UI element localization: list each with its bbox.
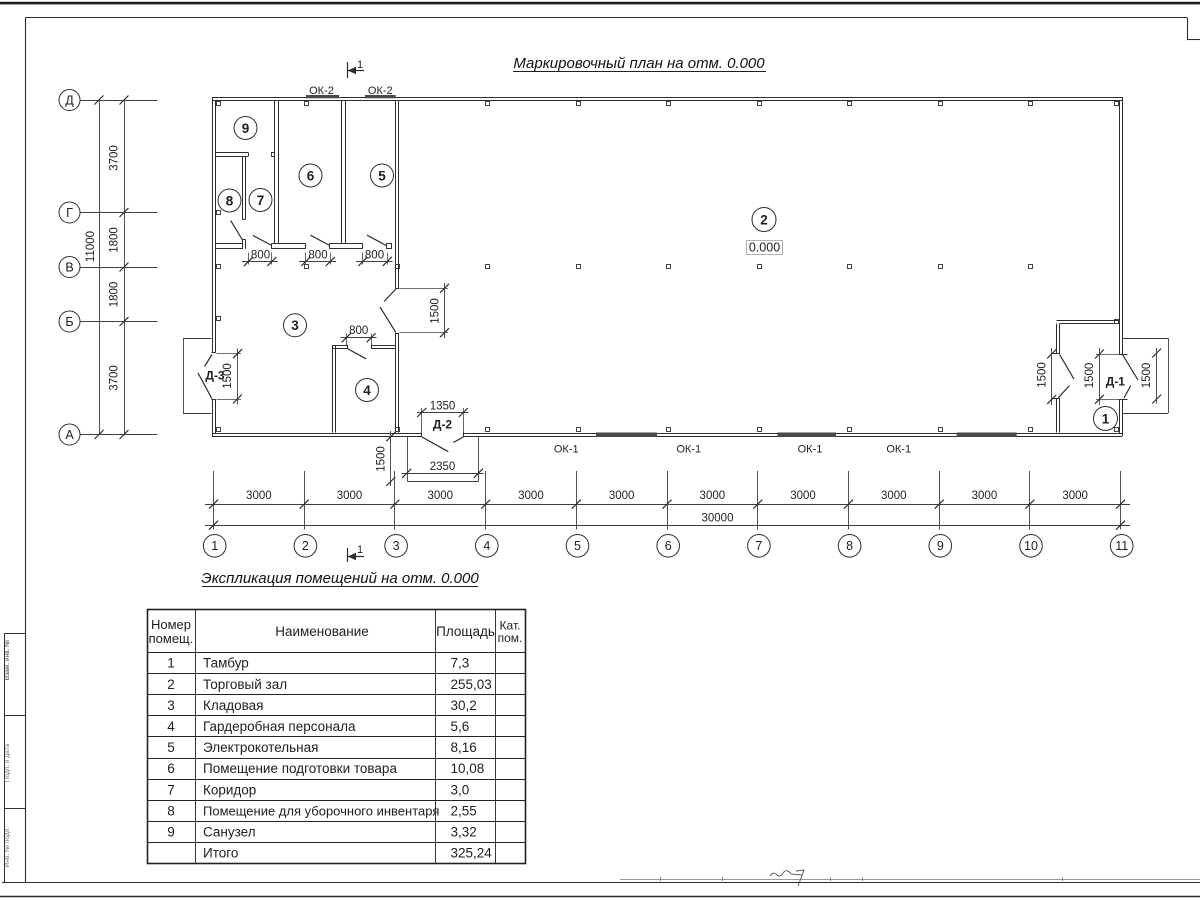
svg-text:3000: 3000 [246, 490, 272, 502]
svg-text:2: 2 [760, 212, 768, 227]
svg-text:3000: 3000 [1062, 490, 1088, 502]
svg-text:1800: 1800 [109, 227, 121, 253]
svg-text:4: 4 [363, 383, 371, 398]
svg-text:3700: 3700 [109, 145, 121, 171]
svg-text:4: 4 [167, 719, 175, 734]
svg-text:6: 6 [307, 168, 315, 183]
svg-text:Д-3: Д-3 [205, 369, 225, 383]
svg-text:Экспликация помещений на отм.: Экспликация помещений на отм. 0.000 [201, 570, 479, 587]
svg-text:3700: 3700 [109, 365, 121, 391]
svg-text:Площадь: Площадь [436, 624, 495, 639]
svg-text:6: 6 [665, 539, 672, 553]
svg-text:9: 9 [167, 824, 175, 839]
svg-text:3: 3 [291, 318, 299, 333]
svg-text:7: 7 [755, 539, 762, 553]
svg-text:Наименование: Наименование [275, 624, 369, 639]
svg-text:ОК-1: ОК-1 [886, 444, 911, 456]
svg-text:800: 800 [308, 249, 327, 261]
svg-text:Коридор: Коридор [203, 782, 256, 797]
svg-text:ОК-2: ОК-2 [368, 85, 393, 97]
svg-text:7: 7 [257, 193, 265, 208]
svg-text:9: 9 [242, 121, 250, 136]
svg-text:Кладовая: Кладовая [203, 698, 263, 713]
svg-text:6: 6 [167, 761, 175, 776]
svg-text:3000: 3000 [972, 490, 998, 502]
svg-text:Маркировочный план на отм. 0.0: Маркировочный план на отм. 0.000 [513, 55, 765, 72]
svg-text:325,24: 325,24 [451, 846, 493, 861]
svg-text:1: 1 [167, 656, 175, 671]
svg-text:ОК-1: ОК-1 [554, 444, 579, 456]
svg-text:Номер: Номер [151, 617, 191, 632]
svg-text:800: 800 [349, 325, 368, 337]
svg-text:ОК-1: ОК-1 [676, 444, 701, 456]
svg-text:5: 5 [378, 168, 386, 183]
svg-text:4: 4 [483, 539, 490, 553]
svg-text:Д: Д [65, 93, 74, 107]
svg-text:2,55: 2,55 [451, 803, 477, 818]
svg-text:5: 5 [574, 539, 581, 553]
svg-text:Помещение для уборочного инвен: Помещение для уборочного инвентаря [203, 803, 439, 818]
svg-text:3000: 3000 [427, 490, 453, 502]
svg-text:Взам. инв. №: Взам. инв. № [4, 640, 11, 680]
svg-text:Итого: Итого [203, 846, 238, 861]
svg-text:Тамбур: Тамбур [203, 656, 249, 671]
svg-text:0.000: 0.000 [749, 240, 780, 254]
svg-text:ОК-2: ОК-2 [309, 85, 334, 97]
svg-text:3: 3 [167, 698, 175, 713]
svg-text:2: 2 [167, 677, 175, 692]
svg-text:8,16: 8,16 [451, 740, 477, 755]
svg-text:800: 800 [251, 249, 270, 261]
svg-text:5,6: 5,6 [451, 719, 470, 734]
svg-text:11: 11 [1115, 539, 1128, 553]
svg-text:8: 8 [167, 803, 175, 818]
svg-text:А: А [65, 428, 74, 442]
svg-text:10: 10 [1024, 539, 1038, 553]
svg-text:1: 1 [211, 539, 218, 553]
svg-text:Г: Г [66, 206, 73, 220]
svg-text:Д-1: Д-1 [1106, 374, 1126, 388]
svg-text:пом.: пом. [498, 631, 523, 645]
svg-text:3000: 3000 [790, 490, 816, 502]
svg-text:30000: 30000 [702, 513, 734, 525]
svg-text:1500: 1500 [1084, 363, 1096, 389]
svg-text:Санузел: Санузел [203, 824, 256, 839]
svg-text:800: 800 [365, 249, 384, 261]
svg-text:1500: 1500 [1141, 363, 1153, 389]
svg-text:помещ.: помещ. [149, 631, 194, 646]
svg-text:1500: 1500 [375, 446, 387, 472]
svg-text:Гардеробная персонала: Гардеробная персонала [203, 719, 356, 734]
svg-text:3,0: 3,0 [451, 782, 470, 797]
svg-text:255,03: 255,03 [451, 677, 492, 692]
svg-text:3: 3 [393, 539, 400, 553]
svg-text:Подп. и дата: Подп. и дата [4, 743, 11, 782]
svg-text:3000: 3000 [609, 490, 635, 502]
svg-text:8: 8 [846, 539, 853, 553]
svg-text:ОК-1: ОК-1 [798, 444, 823, 456]
svg-text:7,3: 7,3 [451, 656, 470, 671]
svg-text:2350: 2350 [430, 461, 456, 473]
svg-text:1800: 1800 [109, 282, 121, 308]
svg-text:В: В [65, 260, 73, 274]
svg-text:1: 1 [1102, 411, 1110, 426]
svg-text:Торговый зал: Торговый зал [203, 677, 287, 692]
svg-text:11000: 11000 [85, 231, 97, 262]
svg-text:Помещение подготовки товара: Помещение подготовки товара [203, 761, 397, 776]
svg-text:8: 8 [226, 193, 234, 208]
svg-text:3000: 3000 [700, 490, 726, 502]
svg-text:1: 1 [357, 544, 363, 556]
svg-text:7: 7 [167, 782, 175, 797]
svg-text:Инв. № подл.: Инв. № подл. [4, 827, 11, 868]
svg-text:Д-2: Д-2 [433, 417, 453, 431]
svg-text:9: 9 [937, 539, 944, 553]
svg-text:Б: Б [65, 315, 73, 329]
svg-text:Электрокотельная: Электрокотельная [203, 740, 318, 755]
svg-text:2: 2 [302, 539, 309, 553]
svg-text:1: 1 [357, 59, 363, 71]
svg-text:3000: 3000 [337, 490, 363, 502]
svg-text:1500: 1500 [430, 298, 442, 324]
svg-text:3,32: 3,32 [451, 824, 477, 839]
svg-text:30,2: 30,2 [451, 698, 477, 713]
svg-text:3000: 3000 [518, 490, 544, 502]
svg-text:5: 5 [167, 740, 175, 755]
svg-text:1500: 1500 [1036, 362, 1048, 388]
svg-text:3000: 3000 [881, 490, 907, 502]
svg-text:10,08: 10,08 [451, 761, 485, 776]
svg-text:1350: 1350 [430, 401, 456, 413]
